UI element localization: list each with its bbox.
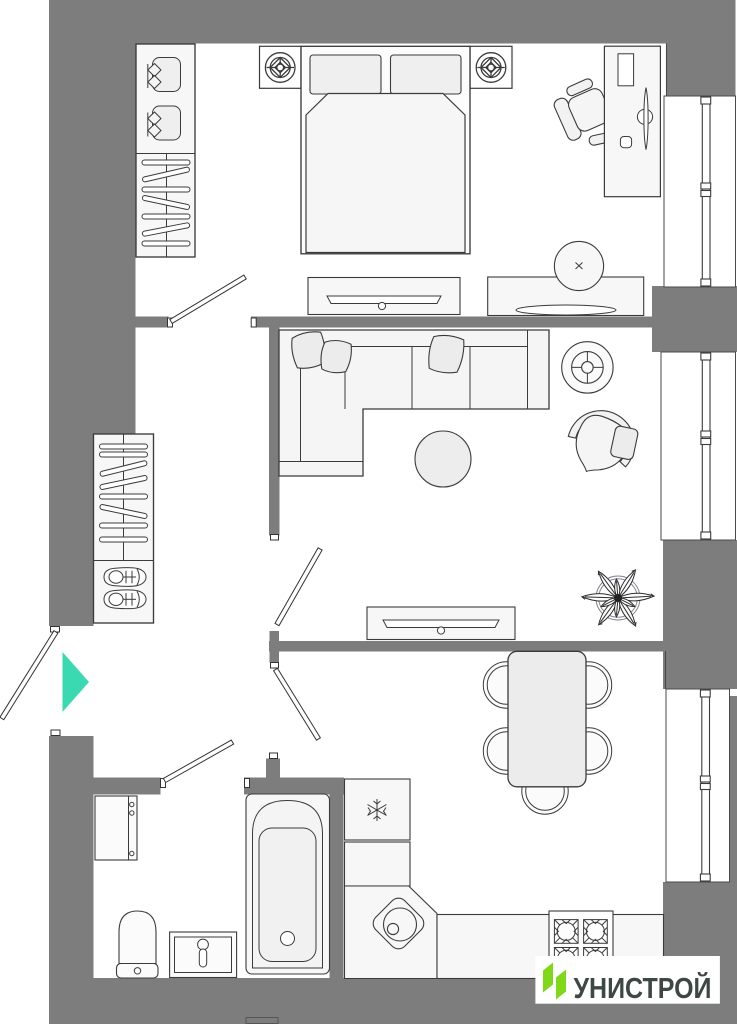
- svg-text:УНИСТРОЙ: УНИСТРОЙ: [574, 972, 712, 1005]
